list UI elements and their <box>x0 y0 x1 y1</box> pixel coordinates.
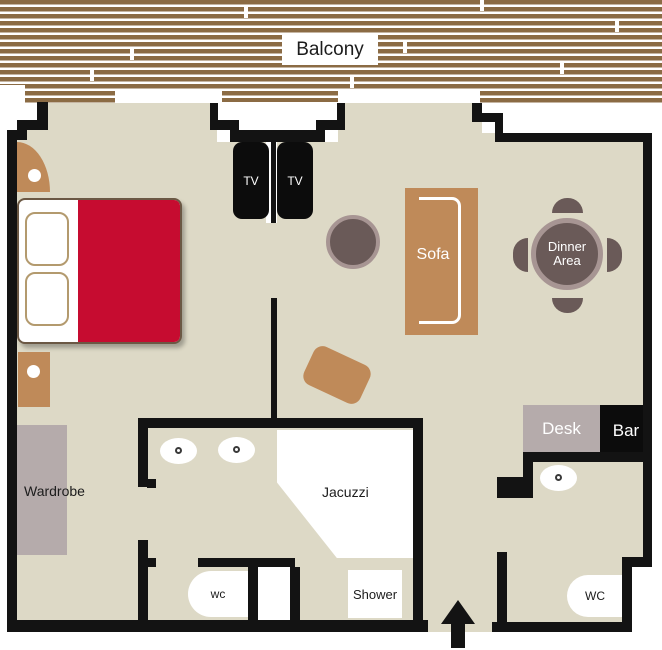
plank-gap <box>338 89 480 103</box>
pillow <box>25 212 69 266</box>
sofa-label: Sofa <box>405 246 461 264</box>
wall-segment <box>7 620 428 632</box>
wall-segment <box>413 428 423 632</box>
desk-label: Desk <box>542 419 581 439</box>
plank-break <box>403 42 407 53</box>
desk: Desk <box>523 405 600 452</box>
dinner-label-line2: Area <box>553 254 580 268</box>
tv-left-label: TV <box>243 174 258 188</box>
bed <box>17 198 182 344</box>
dinner-label-line1: Dinner <box>548 240 586 254</box>
nightstand <box>18 352 50 407</box>
plank-break <box>480 0 484 11</box>
sink <box>218 437 255 463</box>
wall-segment <box>271 298 277 428</box>
sink <box>160 438 197 464</box>
pillow <box>25 272 69 326</box>
wall-segment <box>248 567 258 632</box>
wall-segment <box>138 540 148 632</box>
wall-segment <box>138 418 423 428</box>
wall-segment <box>271 133 276 223</box>
jacuzzi-label: Jacuzzi <box>322 484 369 500</box>
plank-gap <box>115 89 222 103</box>
plank-break <box>350 77 354 88</box>
plank-break <box>90 70 94 81</box>
wall-segment <box>230 130 325 142</box>
entrance-arrow-stem <box>451 622 465 648</box>
wall-segment <box>7 130 17 632</box>
wall-segment <box>643 133 652 567</box>
outside-corner <box>632 567 652 637</box>
dinner-table: Dinner Area <box>531 218 603 290</box>
lamp-dot <box>28 169 41 182</box>
wall-segment <box>17 120 48 130</box>
wall-segment <box>290 567 300 632</box>
toilet-main: wc <box>188 571 248 617</box>
wc-guest-label: WC <box>585 589 605 603</box>
wc-main-label: wc <box>211 587 226 601</box>
plank-break <box>130 49 134 60</box>
plank-break <box>244 7 248 18</box>
wall-segment <box>497 552 507 632</box>
side-table <box>326 215 380 269</box>
toilet-guest: WC <box>567 575 623 617</box>
wall-segment <box>497 477 533 498</box>
wall-segment <box>147 479 156 488</box>
lamp-dot <box>27 365 40 378</box>
bar-label: Bar <box>613 421 639 441</box>
wall-segment <box>523 452 652 462</box>
wall-segment <box>492 622 632 632</box>
tv-right: TV <box>277 142 313 219</box>
wardrobe-label: Wardrobe <box>24 483 85 499</box>
plank-gap <box>0 85 25 103</box>
faucet-icon <box>233 446 240 453</box>
balcony-door-recess <box>482 103 652 133</box>
plank-break <box>560 63 564 74</box>
wall-segment <box>147 558 156 567</box>
tv-left: TV <box>233 142 269 219</box>
sofa: Sofa <box>405 188 478 335</box>
wall-segment <box>138 418 148 487</box>
floor-plan: Balcony Wardrobe TV TV Sofa Dinner Area … <box>0 0 662 650</box>
bed-cover <box>78 200 180 342</box>
shower: Shower <box>348 570 402 618</box>
wall-segment <box>198 558 295 567</box>
wall-segment <box>495 133 652 142</box>
entrance-arrow-icon <box>441 600 475 624</box>
wall-segment <box>337 103 345 122</box>
balcony-label: Balcony <box>282 35 378 65</box>
faucet-icon <box>175 447 182 454</box>
sink <box>540 465 577 491</box>
plank-break <box>615 21 619 32</box>
wall-segment <box>622 557 632 632</box>
tv-right-label: TV <box>287 174 302 188</box>
shower-label: Shower <box>353 587 397 602</box>
faucet-icon <box>555 474 562 481</box>
